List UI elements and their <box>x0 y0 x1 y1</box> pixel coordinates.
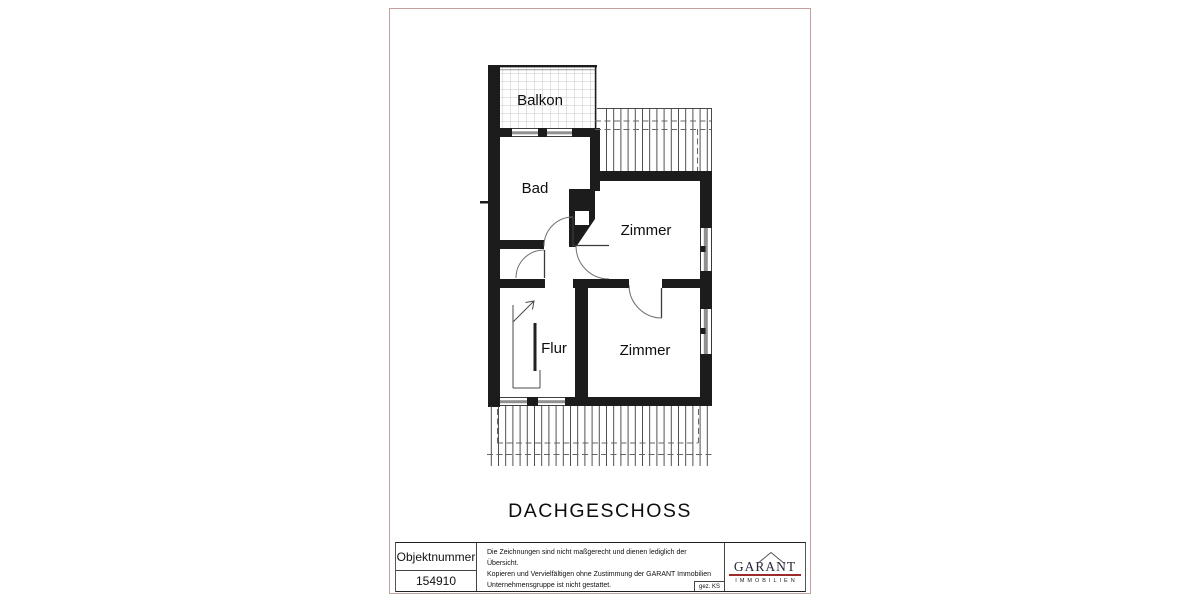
disclaimer-line: Kopieren und Vervielfältigen ohne Zustim… <box>487 570 714 581</box>
window <box>700 228 712 271</box>
window <box>700 309 712 354</box>
room-bottom-door <box>629 285 662 318</box>
room-label-hall: Flur <box>541 340 567 357</box>
roof-icon <box>756 551 786 565</box>
room-label-balcony: Balkon <box>517 92 563 109</box>
drawing-sheet: Balkon Bad Zimmer Zimmer Flur DACHGESCHO… <box>389 8 811 594</box>
window <box>538 397 565 406</box>
stair-direction-arrow <box>513 301 534 322</box>
top-wall <box>488 128 600 137</box>
bath-door <box>544 217 573 246</box>
object-number-cell: Objektnummer 154910 <box>396 543 477 591</box>
bath-south-wall <box>488 240 544 249</box>
room-top-north-wall <box>597 171 712 181</box>
object-number-label: Objektnummer <box>396 543 476 571</box>
disclaimer-cell: Die Zeichnungen sind nicht maßgerecht un… <box>477 543 724 591</box>
disclaimer-line: Unternehmensgruppe ist nicht gestattet. <box>487 581 714 592</box>
logo-subtitle-text: IMMOBILIEN <box>729 578 801 584</box>
floor-plan: Balkon Bad Zimmer Zimmer Flur DACHGESCHO… <box>390 9 810 593</box>
window <box>512 128 538 137</box>
drawn-by-box: gez. KS <box>694 581 724 591</box>
room-top-door <box>573 246 609 280</box>
bottom-wall <box>488 397 712 406</box>
roof-hatch-bottom <box>487 406 712 466</box>
roof-hatch-top <box>595 108 712 173</box>
room-label-bath: Bad <box>522 180 549 197</box>
room-label-room-top: Zimmer <box>621 222 672 239</box>
stair-door <box>516 250 545 278</box>
garant-logo: GARANT IMMOBILIEN <box>724 543 805 591</box>
right-exterior-wall <box>700 171 712 404</box>
disclaimer-line: Die Zeichnungen sind nicht maßgerecht un… <box>487 548 714 570</box>
title-block: Objektnummer 154910 Die Zeichnungen sind… <box>395 542 806 592</box>
window <box>547 128 572 137</box>
wall-tick <box>480 201 488 204</box>
logo-rule <box>729 574 801 576</box>
room-label-room-bottom: Zimmer <box>620 342 671 359</box>
middle-divider-wall <box>497 279 712 288</box>
bath-east-wall <box>590 137 600 191</box>
staircase <box>513 301 540 388</box>
left-exterior-wall <box>488 65 500 407</box>
hall-east-wall <box>575 288 588 397</box>
disclaimer-text: Die Zeichnungen sind nicht maßgerecht un… <box>487 548 714 591</box>
floor-title: DACHGESCHOSS <box>508 500 692 522</box>
object-number-value: 154910 <box>396 571 476 591</box>
window <box>500 397 527 406</box>
